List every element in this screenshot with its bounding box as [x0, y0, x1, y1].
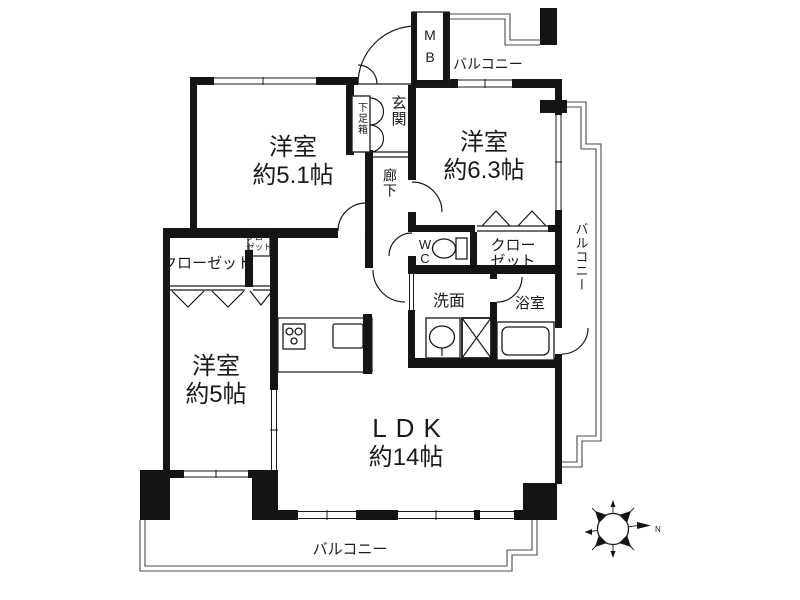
bedroom63-door-arc	[412, 182, 442, 212]
floor-plan-drawing: N 洋室 約5.1帖 洋室 約6.3帖 洋室 約5帖 LDK 約14帖 クローゼ…	[0, 0, 800, 600]
label-washroom: 洗面	[433, 292, 465, 310]
window-bedroom63-right	[555, 115, 562, 210]
compass-north-label: N	[655, 525, 661, 534]
kitchen-sink-icon	[333, 324, 363, 348]
label-closet-small-1: クロー	[246, 232, 272, 242]
label-ldk-name: LDK	[372, 413, 450, 443]
window-ldk-bottom-2	[398, 510, 474, 520]
label-closet-right-2: ゼット	[490, 253, 535, 270]
label-bedroom5-size: 約5帖	[185, 381, 246, 408]
label-mb-b: B	[425, 49, 434, 65]
label-shoe-box: 下足箱	[356, 102, 368, 135]
window-ldk-bottom-1	[298, 510, 356, 520]
washing-machine-icon	[462, 318, 491, 358]
window-bedroom63-top	[458, 79, 512, 88]
toilet-icon	[433, 238, 468, 259]
label-ldk-size: 約14帖	[369, 444, 444, 471]
sliding-door-bedroom5-ldk	[270, 390, 278, 470]
label-bedroom51-name: 洋室	[269, 134, 317, 161]
label-wc-w: W	[419, 237, 432, 252]
label-closet-right-1: クロー	[490, 237, 535, 254]
label-balcony-top: バルコニー	[453, 56, 523, 72]
corridor-ldk-door-arc	[373, 270, 405, 302]
label-wc-c: C	[420, 251, 429, 266]
label-bathroom: 浴室	[515, 295, 545, 312]
label-mb-m: M	[424, 27, 436, 43]
bath-balcony-door-arc	[562, 328, 588, 354]
floor-plan: N 洋室 約5.1帖 洋室 約6.3帖 洋室 約5帖 LDK 約14帖 クローゼ…	[0, 0, 800, 600]
north-arrow	[637, 522, 651, 529]
washbasin-icon	[426, 318, 460, 358]
label-entrance: 玄関	[390, 95, 407, 127]
label-closet-small-2: ゼット	[246, 242, 272, 252]
label-bedroom63-size: 約6.3帖	[443, 157, 524, 184]
label-closet-left: クローゼット	[162, 255, 252, 272]
label-bedroom51-size: 約5.1帖	[252, 162, 333, 189]
label-bedroom5-name: 洋室	[192, 353, 240, 380]
window-bedroom5-bottom	[184, 470, 248, 478]
entrance-door-arc	[358, 26, 416, 84]
bedroom51-door-arc	[338, 203, 366, 231]
door-washroom-entry	[410, 274, 414, 310]
compass-rose: N	[585, 500, 661, 558]
label-bedroom63-name: 洋室	[460, 129, 508, 156]
wc-door-arc	[389, 233, 412, 256]
window-ldk-bottom-3	[480, 510, 514, 520]
label-balcony-bottom: バルコニー	[313, 541, 388, 558]
room-labels: 洋室 約5.1帖 洋室 約6.3帖 洋室 約5帖 LDK 約14帖 クローゼット…	[162, 27, 589, 558]
stove-icon	[283, 324, 305, 349]
bathtub-icon	[497, 322, 554, 360]
label-corridor: 廊下	[382, 167, 398, 198]
window-bedroom51-top	[214, 77, 316, 85]
label-balcony-right: バルコニー	[574, 222, 589, 292]
